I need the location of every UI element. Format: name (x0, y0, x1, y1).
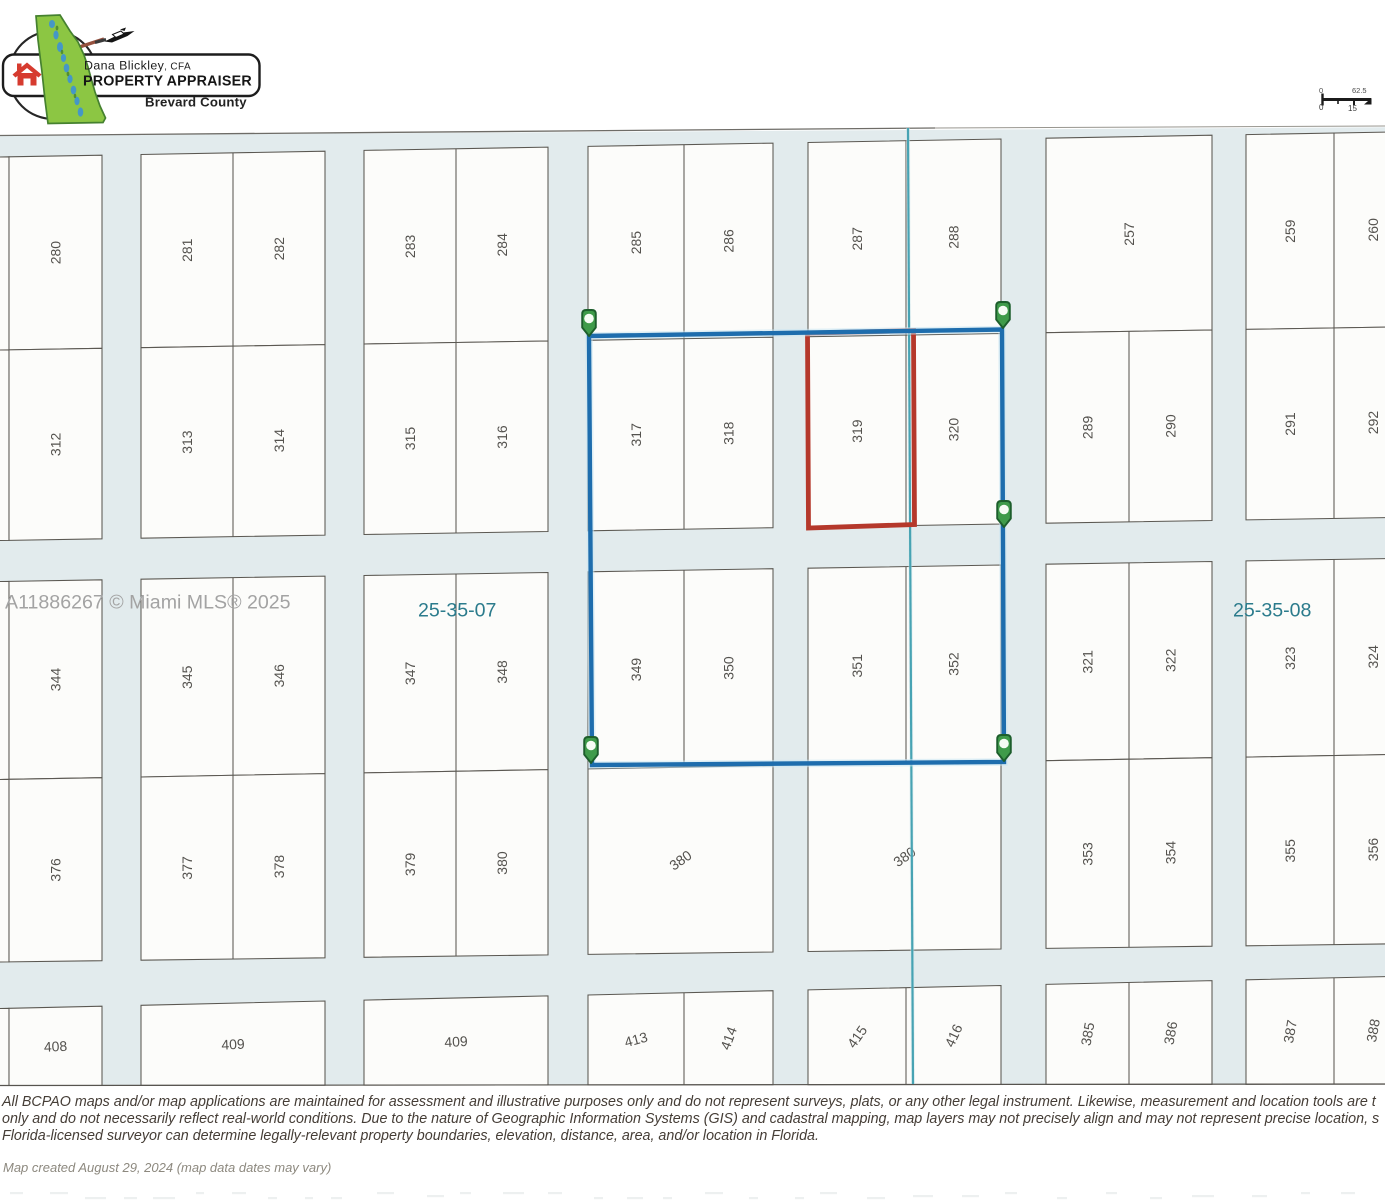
svg-text:All BCPAO maps and/or map appl: All BCPAO maps and/or map applications a… (1, 1094, 1377, 1110)
svg-text:287: 287 (849, 227, 865, 251)
svg-text:378: 378 (271, 855, 287, 879)
svg-text:346: 346 (271, 664, 287, 688)
svg-text:25-35-08: 25-35-08 (1233, 600, 1312, 622)
svg-text:318: 318 (721, 421, 737, 445)
svg-text:62.5: 62.5 (1352, 86, 1367, 95)
svg-text:282: 282 (271, 237, 287, 261)
svg-text:Brevard County: Brevard County (145, 95, 247, 110)
svg-text:354: 354 (1163, 841, 1179, 865)
svg-text:408: 408 (43, 1038, 67, 1055)
svg-text:321: 321 (1080, 650, 1096, 674)
svg-text:314: 314 (271, 429, 287, 453)
svg-text:356: 356 (1365, 838, 1381, 862)
svg-text:353: 353 (1080, 842, 1096, 866)
svg-text:319: 319 (849, 419, 865, 443)
svg-text:291: 291 (1282, 412, 1298, 436)
svg-text:A11886267 © Miami MLS® 2025: A11886267 © Miami MLS® 2025 (5, 592, 291, 614)
svg-text:284: 284 (494, 233, 510, 257)
svg-text:288: 288 (946, 225, 962, 249)
svg-text:349: 349 (628, 658, 644, 682)
svg-text:0: 0 (1319, 86, 1323, 95)
svg-text:280: 280 (48, 241, 64, 265)
svg-text:409: 409 (221, 1036, 245, 1053)
svg-text:292: 292 (1365, 411, 1381, 435)
svg-text:350: 350 (721, 656, 737, 680)
svg-text:286: 286 (721, 229, 737, 253)
svg-text:PROPERTY APPRAISER: PROPERTY APPRAISER (83, 74, 252, 90)
svg-text:315: 315 (402, 427, 418, 451)
svg-text:313: 313 (179, 430, 195, 454)
svg-text:320: 320 (946, 418, 962, 442)
svg-text:15: 15 (1348, 104, 1357, 113)
svg-text:0: 0 (1319, 103, 1324, 112)
svg-text:312: 312 (48, 433, 64, 457)
svg-text:316: 316 (494, 425, 510, 449)
svg-text:377: 377 (179, 856, 195, 880)
svg-text:355: 355 (1282, 839, 1298, 863)
svg-text:379: 379 (402, 853, 418, 877)
svg-text:281: 281 (179, 238, 195, 262)
svg-text:260: 260 (1365, 218, 1381, 242)
svg-text:351: 351 (849, 654, 865, 678)
svg-text:25-35-07: 25-35-07 (418, 600, 496, 622)
svg-text:347: 347 (402, 662, 418, 686)
svg-text:322: 322 (1163, 648, 1179, 672)
svg-text:409: 409 (444, 1033, 468, 1050)
svg-text:Map created August 29, 2024 (m: Map created August 29, 2024 (map data da… (3, 1160, 331, 1175)
svg-text:344: 344 (48, 668, 64, 692)
svg-text:348: 348 (494, 660, 510, 684)
svg-text:352: 352 (946, 652, 962, 676)
svg-text:380: 380 (494, 851, 510, 875)
svg-text:only and do not necessarily re: only and do not necessarily reflect real… (2, 1111, 1379, 1127)
svg-text:257: 257 (1121, 222, 1137, 246)
svg-text:345: 345 (179, 665, 195, 689)
svg-text:289: 289 (1080, 416, 1096, 440)
svg-text:376: 376 (48, 858, 64, 882)
svg-text:259: 259 (1282, 219, 1298, 243)
svg-text:323: 323 (1282, 646, 1298, 670)
svg-text:Dana Blickley, CFA: Dana Blickley, CFA (84, 59, 191, 73)
svg-text:290: 290 (1163, 414, 1179, 438)
svg-text:324: 324 (1365, 645, 1381, 669)
svg-text:285: 285 (628, 231, 644, 255)
svg-text:317: 317 (628, 423, 644, 447)
svg-text:Florida-licensed surveyor can: Florida-licensed surveyor can determine … (2, 1128, 819, 1144)
svg-text:283: 283 (402, 235, 418, 259)
